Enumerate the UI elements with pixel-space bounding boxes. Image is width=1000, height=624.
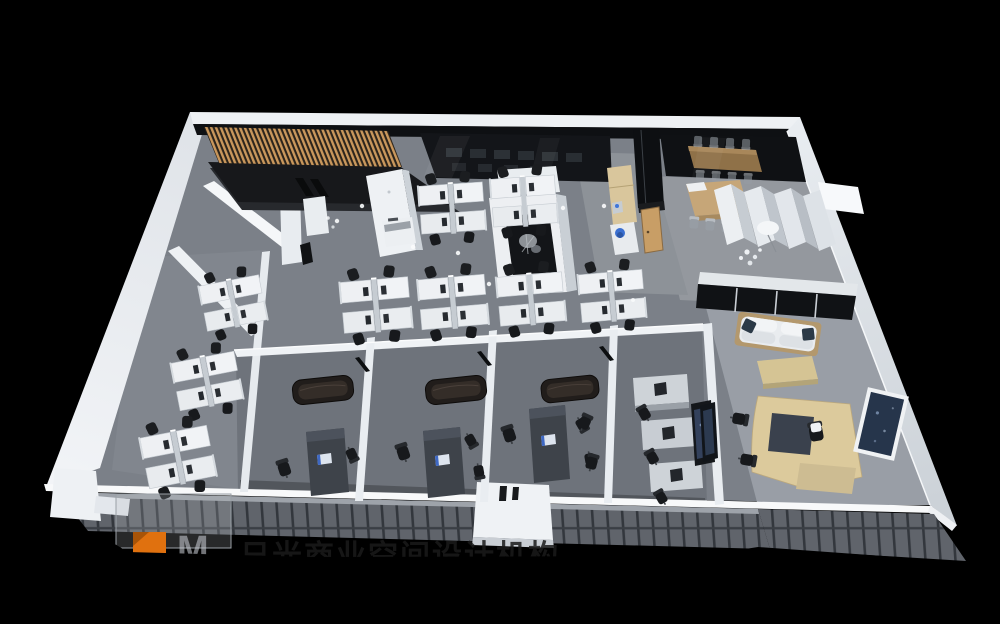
- partition-fixing: [388, 191, 391, 194]
- coffee-table: [757, 356, 818, 384]
- side-cabinet: [303, 196, 329, 236]
- finance-monitor-2: [662, 426, 675, 440]
- core-door-2: [512, 487, 519, 500]
- door-handle: [647, 231, 650, 234]
- exec-return-cabinet: [796, 463, 856, 494]
- finance-monitor-1: [654, 382, 667, 396]
- conference-room: [660, 134, 806, 184]
- floor-lamp-shade: [757, 221, 779, 235]
- blue-bin-shade: [617, 232, 623, 238]
- pantry-cabinet: [610, 222, 639, 255]
- exec-desk-inlay: [768, 413, 814, 455]
- water-bottle: [615, 204, 619, 208]
- copier: [382, 217, 416, 247]
- left-core-block: [50, 468, 101, 521]
- lounge-chair: [705, 218, 716, 231]
- manager-offices: [275, 374, 600, 498]
- core-door-1: [499, 486, 507, 501]
- office-floorplan-render: M 日光商业空间设计机构: [0, 0, 1000, 624]
- finance-monitor-3: [670, 468, 683, 482]
- lounge-chair: [689, 216, 700, 229]
- wood-slat-canopy: [204, 127, 402, 167]
- offices-floor: [236, 327, 707, 506]
- glass-column: [633, 128, 664, 208]
- render-stage: M 日光商业空间设计机构: [0, 0, 1000, 624]
- wood-door: [641, 207, 663, 253]
